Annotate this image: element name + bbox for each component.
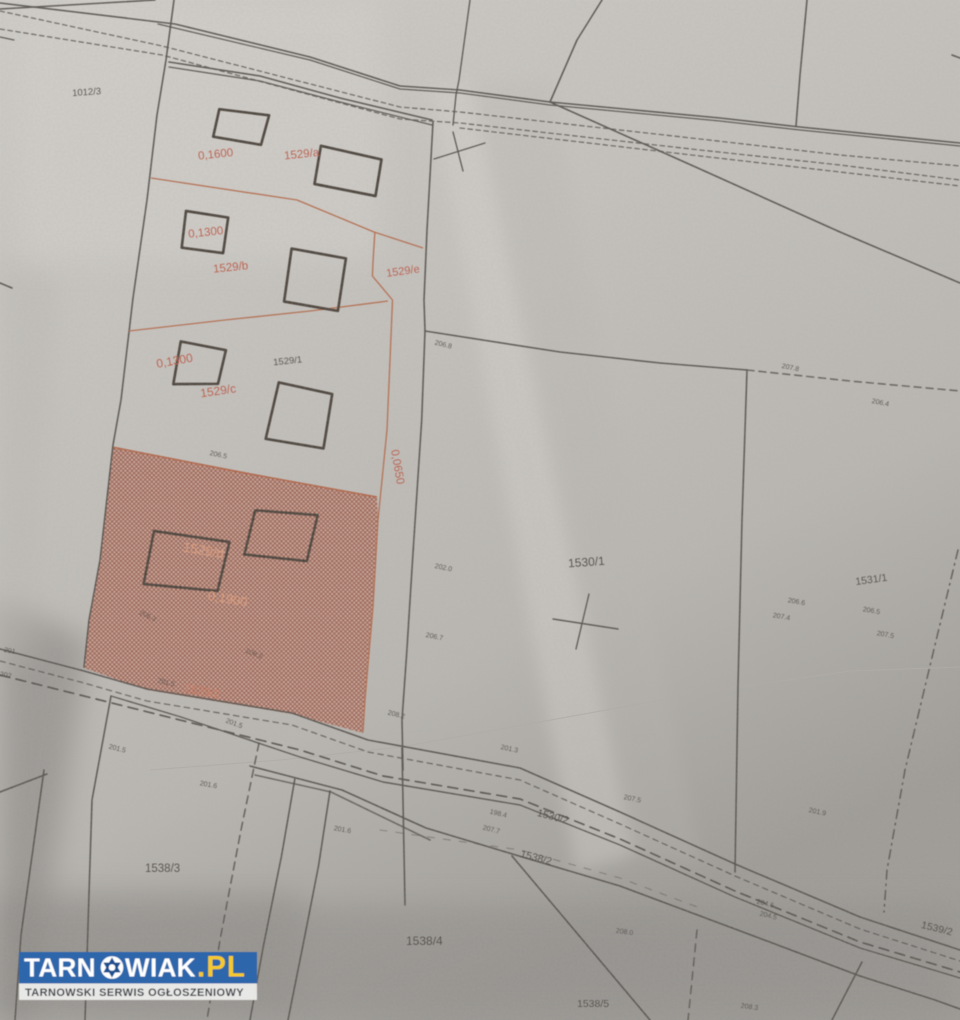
svg-text:WIAK: WIAK xyxy=(125,953,196,983)
svg-text:TARNOWSKI SERWIS OGŁOSZENIOWY: TARNOWSKI SERWIS OGŁOSZENIOWY xyxy=(25,987,244,999)
svg-text:.PL: .PL xyxy=(197,951,246,984)
svg-text:TARN: TARN xyxy=(24,953,96,983)
